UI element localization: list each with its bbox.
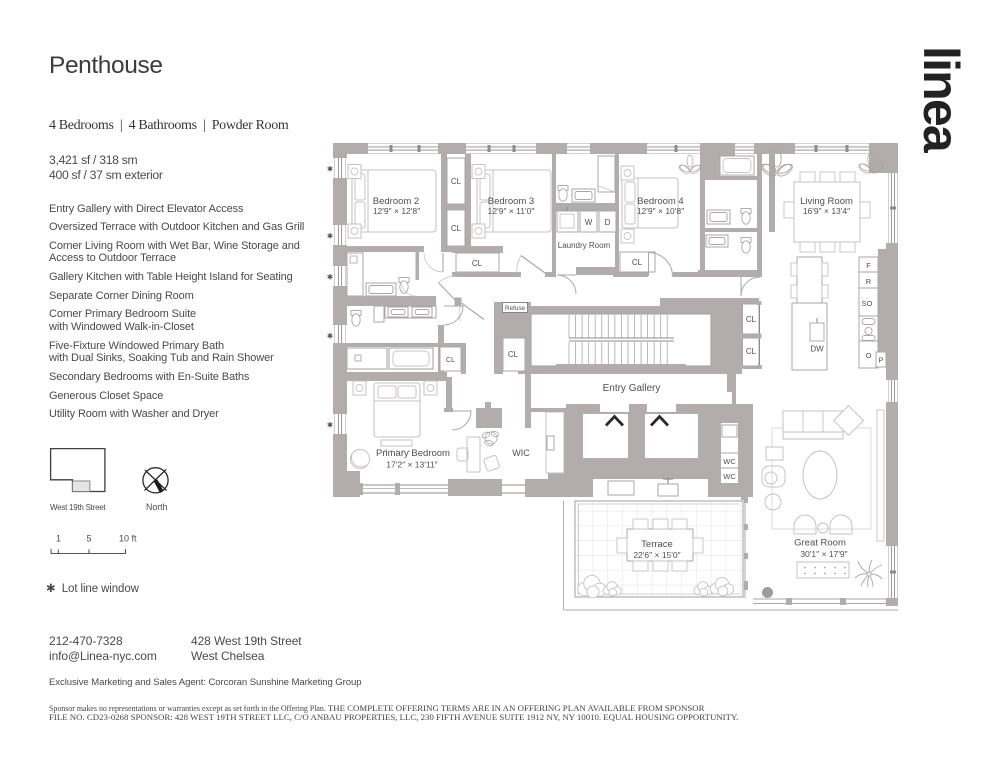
svg-text:F: F [866,261,871,270]
svg-text:DW: DW [810,345,824,354]
svg-text:CL: CL [451,224,462,233]
svg-text:Entry Gallery: Entry Gallery [603,383,661,394]
svg-text:W: W [585,218,593,227]
svg-text:P: P [878,356,883,365]
svg-text:Laundry Room: Laundry Room [558,241,611,250]
svg-text:CL: CL [746,347,757,356]
svg-text:D: D [605,218,611,227]
svg-text:CL: CL [632,258,643,267]
svg-text:Terrace: Terrace [641,539,673,550]
svg-text:12'9″ × 11'0″: 12'9″ × 11'0″ [488,206,535,216]
svg-text:22'6″ × 15'0″: 22'6″ × 15'0″ [633,550,680,560]
svg-text:12'9″ × 10'8″: 12'9″ × 10'8″ [637,206,684,216]
svg-text:CL: CL [508,350,519,359]
svg-text:Refuse: Refuse [505,305,525,312]
svg-text:O: O [866,351,872,360]
svg-text:CL: CL [472,259,483,268]
svg-text:SO: SO [862,299,873,308]
svg-text:WIC: WIC [512,448,530,458]
svg-text:WC: WC [723,472,736,481]
svg-text:CL: CL [746,315,757,324]
svg-text:17'2″ × 13'11″: 17'2″ × 13'11″ [386,460,437,470]
svg-text:R: R [866,277,872,286]
svg-text:✱: ✱ [327,273,334,282]
svg-text:✱: ✱ [327,232,334,241]
svg-text:CL: CL [446,357,455,364]
svg-text:✱: ✱ [327,332,334,341]
svg-text:Great Room: Great Room [794,538,846,549]
svg-text:✱: ✱ [327,421,334,430]
svg-text:Primary Bedroom: Primary Bedroom [376,448,450,459]
svg-text:CL: CL [451,177,462,186]
svg-text:✱: ✱ [327,165,334,174]
svg-text:12'9″ × 12'8″: 12'9″ × 12'8″ [373,206,420,216]
svg-text:16'9″ × 13'4″: 16'9″ × 13'4″ [803,206,850,216]
svg-text:WC: WC [723,457,736,466]
svg-text:30'1″ × 17'9″: 30'1″ × 17'9″ [800,549,847,559]
